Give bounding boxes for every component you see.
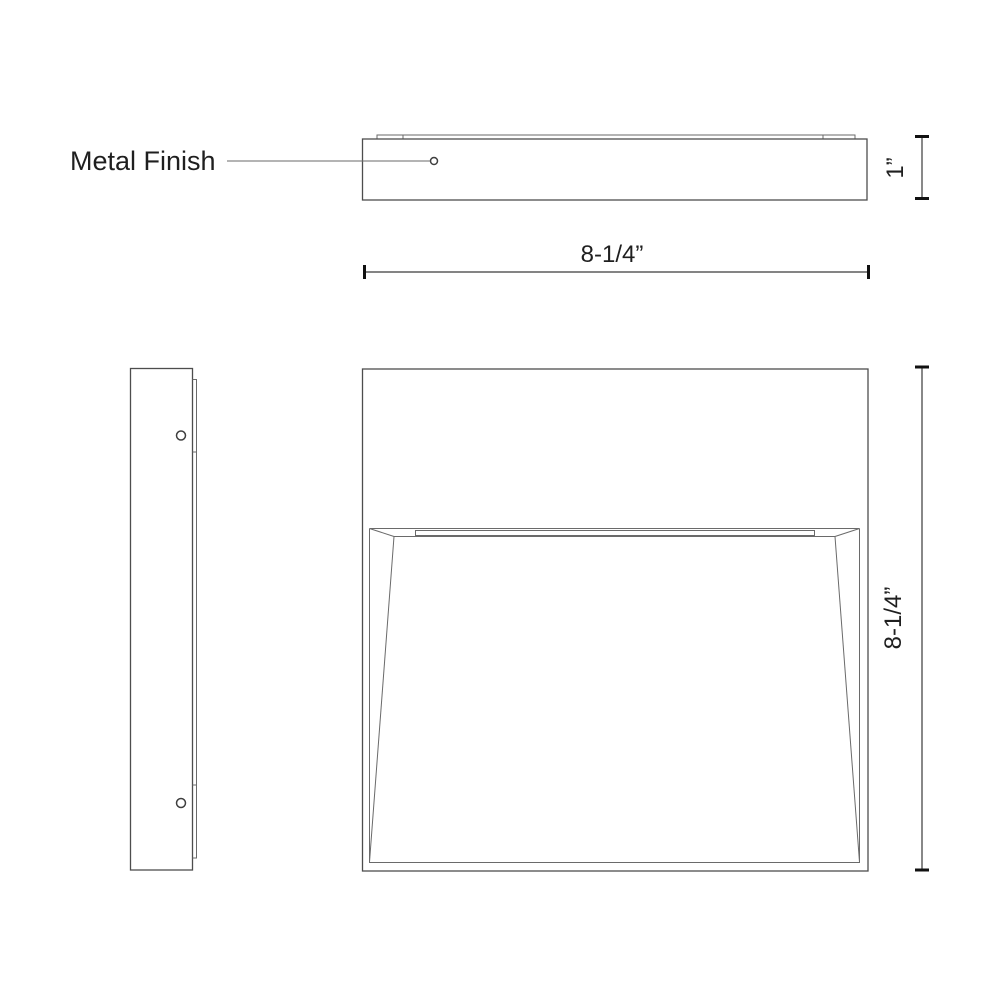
- drawing-canvas: Metal Finish 1” 8-1/4”: [0, 0, 1000, 1000]
- width-dimension-text: 8-1/4”: [581, 241, 644, 268]
- height-dimension-text: 8-1/4”: [880, 587, 907, 650]
- side-view: [131, 369, 197, 871]
- front-view-panel-edge-left: [370, 537, 395, 863]
- front-view-outer-frame: [363, 369, 869, 871]
- front-view-panel-edge-right: [835, 537, 860, 863]
- mounting-hole-top: [177, 431, 186, 440]
- top-view: [363, 135, 868, 200]
- front-view-facet-right: [835, 529, 860, 537]
- front-view-facet-left: [370, 529, 395, 537]
- front-view-opening-inner-frame: [370, 529, 860, 863]
- metal-finish-callout: Metal Finish: [70, 146, 430, 176]
- technical-drawing-page: Metal Finish 1” 8-1/4”: [0, 0, 1000, 1000]
- top-view-body: [363, 139, 868, 200]
- metal-finish-label: Metal Finish: [70, 146, 216, 176]
- side-view-body: [131, 369, 193, 871]
- height-dimension: 8-1/4”: [880, 367, 929, 870]
- mounting-hole-bottom: [177, 799, 186, 808]
- front-view: [363, 369, 869, 871]
- width-dimension: 8-1/4”: [365, 241, 869, 279]
- depth-dimension: 1”: [882, 137, 929, 199]
- metal-finish-leader-dot: [431, 158, 438, 165]
- front-view-lens-strip: [416, 531, 815, 536]
- depth-dimension-text: 1”: [882, 157, 909, 178]
